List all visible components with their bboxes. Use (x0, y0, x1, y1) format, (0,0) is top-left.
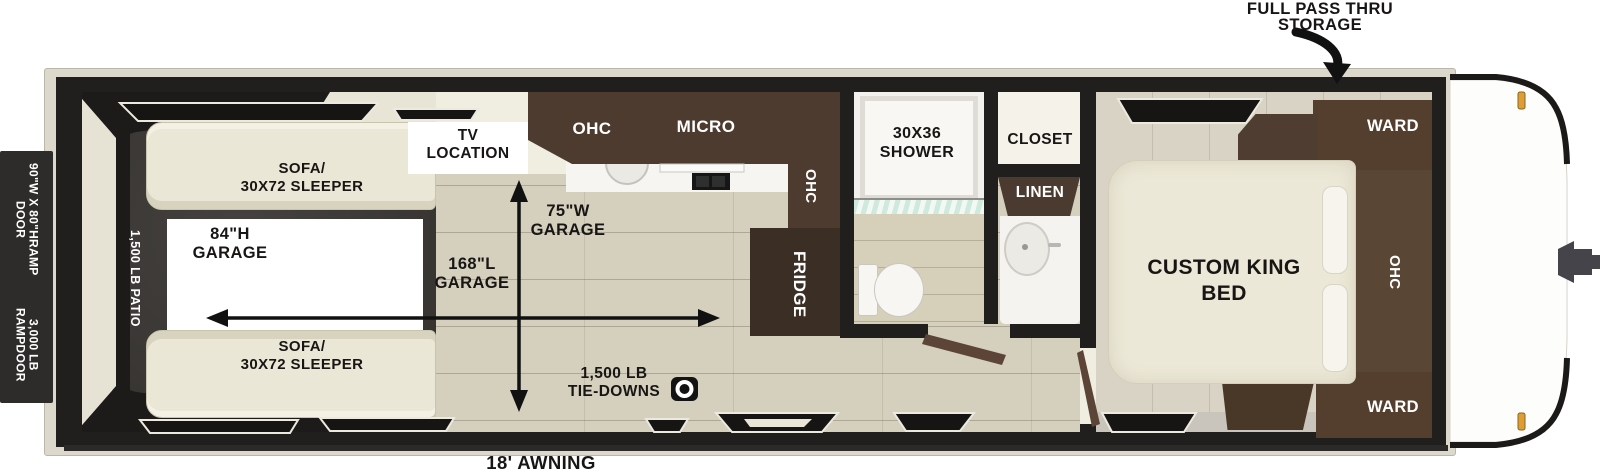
awning-bar (64, 445, 1448, 451)
awning-label: 18' AWNING (478, 452, 604, 472)
ramp-door-size-label: 90"W X 80"HRAMP DOOR (14, 151, 40, 288)
vanity-faucet (1048, 243, 1061, 247)
fridge-label: FRIDGE (783, 233, 809, 335)
king-bed-label: CUSTOM KINGBED (1106, 255, 1342, 307)
rv-floorplan: 90"W X 80"HRAMP DOOR 3,000 LB RAMPDOOR 1… (0, 0, 1600, 472)
front-cap (1446, 66, 1600, 460)
toilet-bowl (874, 263, 924, 317)
bedroom-ohc-label: OHC (1381, 245, 1403, 299)
patio-capacity-label: 1,500 LB PATIO (120, 222, 142, 334)
counter-ohc-label: OHC (797, 163, 819, 209)
marker-light (1518, 413, 1525, 430)
closet-divider-wall (998, 164, 1080, 177)
pass-thru-storage-label: FULL PASS THRUSTORAGE (1230, 1, 1410, 33)
hitch-coupler (1558, 241, 1600, 283)
kitchen-tall-cabinet (788, 92, 840, 232)
marker-light (1518, 92, 1525, 109)
bedroom-wall-lower (1080, 424, 1096, 432)
ward-bottom-label: WARD (1352, 398, 1434, 417)
ward-top-label: WARD (1352, 117, 1434, 136)
front-cap-body (1450, 80, 1567, 442)
garage-top-platform (146, 92, 436, 122)
vanity-sink-drain (1022, 244, 1028, 250)
sofa-bottom-label: SOFA/30X72 SLEEPER (212, 338, 392, 373)
shower-label: 30X36SHOWER (854, 125, 980, 163)
front-cap-trim-bottom (1450, 358, 1567, 445)
ramp-door-capacity-label: 3,000 LB RAMPDOOR (14, 288, 40, 403)
tie-downs-label: 1,500 LBTIE-DOWNS (556, 365, 672, 402)
micro-label: MICRO (664, 117, 748, 137)
sofa-top-label: SOFA/30X72 SLEEPER (212, 160, 392, 195)
nightstand (1222, 382, 1314, 430)
kitchen-ohc-label: OHC (556, 119, 628, 139)
ramp-door-tab: 90"W X 80"HRAMP DOOR 3,000 LB RAMPDOOR (0, 151, 53, 403)
closet-label: CLOSET (996, 131, 1084, 149)
front-cap-trim-top (1450, 77, 1567, 164)
bath-wall-bottom-left (840, 324, 928, 338)
bath-wall-right (984, 92, 998, 324)
garage-length-label: 168"LGARAGE (417, 255, 527, 294)
tv-location-label: TVLOCATION (408, 127, 528, 164)
linen-label: LINEN (998, 184, 1082, 202)
closet (998, 92, 1080, 164)
bath-wall-left (840, 92, 854, 338)
garage-height-label: 84"HGARAGE (175, 225, 285, 264)
garage-width-label: 75"WGARAGE (513, 202, 623, 241)
